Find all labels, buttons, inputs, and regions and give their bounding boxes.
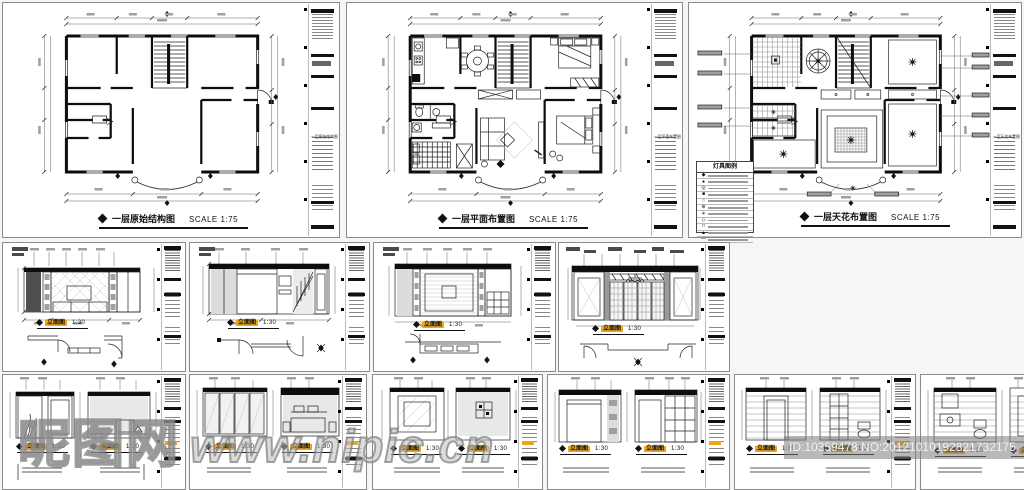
legend-symbol: ◆ — [699, 173, 708, 178]
elevation-drawing — [560, 244, 706, 370]
elevation-scale: 1:30 — [241, 444, 254, 450]
elevation-scale: 1:30 — [628, 326, 641, 332]
titleblock: PROJECT一层天花布置图 — [990, 4, 1020, 236]
titleblock — [705, 376, 728, 488]
diamond-icon — [390, 445, 397, 452]
elevation-title-text: 立面图 — [99, 444, 121, 450]
plan-section — [580, 344, 696, 366]
legend-label-bar — [708, 232, 748, 234]
legend-label-bar — [708, 226, 748, 228]
elevation-scale: 1:30 — [595, 446, 608, 452]
diamond-icon — [98, 214, 108, 224]
legend-symbol: ◎ — [699, 186, 708, 191]
titleblock — [705, 244, 728, 370]
plan-title: 一层原始结构图SCALE 1:75 — [99, 212, 248, 229]
plan-title-text: 一层天花布置图 — [814, 212, 877, 222]
titleblock — [531, 244, 554, 370]
elevation-title-text: 立面图 — [755, 446, 777, 452]
legend-label-bar — [708, 207, 748, 209]
diamond-icon — [746, 445, 753, 452]
titleblock-drawing-name: 一层平面布置图 — [654, 134, 681, 139]
elevation-title-text: 立面图 — [290, 444, 312, 450]
elevation-title: 立面图1:30 — [391, 445, 442, 455]
plan-section — [207, 468, 327, 472]
elevation-title: 立面图1:30 — [593, 325, 644, 335]
plan-section — [938, 468, 1024, 472]
titleblock — [342, 376, 365, 488]
diamond-icon — [438, 214, 448, 224]
elevation-title: 立面图1:30 — [459, 445, 510, 455]
legend-label-bar — [708, 220, 748, 222]
plan-title-text: 一层平面布置图 — [452, 214, 515, 224]
diamond-icon — [413, 321, 420, 328]
elevation-title-text: 立面图 — [601, 326, 623, 332]
sheet-structure-plan: 一层原始结构图SCALE 1:75 PROJECT一层原始结构图 — [2, 2, 340, 238]
titleblock: PROJECT一层原始结构图 — [308, 4, 338, 236]
elevation-title-text: 立面图 — [45, 320, 67, 326]
diamond-icon — [227, 319, 234, 326]
diamond-icon — [281, 443, 288, 450]
elevation-title: 立面图1:30 — [37, 319, 88, 329]
plan-scale: SCALE 1:75 — [189, 215, 238, 224]
sheet-elevation-lattice-wall: 立面图1:30 — [558, 242, 730, 372]
diamond-icon — [559, 445, 566, 452]
elevation-scale: 1:30 — [426, 446, 439, 452]
elevation-scale: 1:30 — [263, 320, 276, 326]
diamond-icon — [90, 443, 97, 450]
legend-label-bar — [708, 239, 748, 241]
sheet-elevation-openings: 立面图1:30 立面图1:30 — [547, 374, 730, 490]
plan-section — [405, 334, 501, 363]
diamond-icon — [458, 445, 465, 452]
titleblock: PROJECT一层平面布置图 — [651, 4, 681, 236]
legend-symbol: ⊕ — [699, 205, 708, 210]
sheet-elevation-entry: 立面图1:30 立面图1:30 — [2, 374, 186, 490]
plan-title: 一层平面布置图SCALE 1:75 — [439, 212, 588, 229]
legend-symbol: ◇ — [699, 218, 708, 223]
plan-scale: SCALE 1:75 — [891, 213, 940, 222]
sheet-elevation-bath-1: 立面图1:30 立面图1:30 — [734, 374, 916, 490]
elevation-title: 立面图1:30 — [17, 443, 68, 453]
furniture-plan-drawing — [348, 4, 653, 236]
legend-symbol: □ — [699, 224, 708, 229]
elevation-scale: 1:30 — [449, 322, 462, 328]
legend-symbol: ■ — [699, 192, 708, 197]
titleblock — [345, 244, 368, 370]
legend-label-bar — [708, 194, 748, 196]
elevation-title-text: 立面图 — [236, 320, 258, 326]
sheet-elevation-bath-2: 立面图1:30 立面图1:30 — [920, 374, 1024, 490]
diamond-icon — [800, 212, 810, 222]
diamond-icon — [205, 443, 212, 450]
elevation-drawing — [4, 244, 162, 370]
elevation-title: 立面图1:30 — [282, 443, 333, 453]
titleblock — [161, 376, 184, 488]
sheet-elevation-bedroom-walls: 立面图1:30 立面图1:30 — [372, 374, 543, 490]
elevation-title-text: 立面图 — [644, 446, 666, 452]
plan-section — [394, 468, 504, 472]
legend-label-bar — [708, 181, 748, 183]
elevation-title: 立面图1:30 — [228, 319, 279, 329]
elevation-title-text: 立面图 — [422, 322, 444, 328]
legend-symbol: ● — [699, 180, 708, 185]
elevation-title: 立面图1:30 — [206, 443, 257, 453]
elevation-scale: 1:30 — [494, 446, 507, 452]
legend-label-bar — [708, 175, 748, 177]
elevation-drawing — [375, 244, 532, 370]
elevation-title-text: 立面图 — [399, 446, 421, 452]
plan-title-text: 一层原始结构图 — [112, 214, 175, 224]
elevation-drawing — [4, 376, 162, 490]
titleblock — [518, 376, 541, 488]
plan-section — [563, 468, 685, 472]
legend-label-bar — [708, 200, 748, 202]
titleblock — [161, 244, 184, 370]
elevation-scale: 1:30 — [52, 444, 65, 450]
elevation-title-text: 立面图 — [214, 444, 236, 450]
image-id-bar: ID:10359478 NO:20121010192821732175 — [784, 436, 1024, 459]
elevation-scale: 1:30 — [317, 444, 330, 450]
legend-label-bar — [708, 188, 748, 190]
sheet-elevation-wardrobe: 立面图1:30 立面图1:30 — [189, 374, 367, 490]
legend-title: 灯具图例 — [697, 162, 753, 173]
elevation-drawing — [549, 376, 706, 490]
elevation-drawing — [191, 244, 346, 370]
plan-title: 一层天花布置图SCALE 1:75 — [801, 210, 950, 227]
legend-symbol: ✳ — [699, 212, 708, 217]
sheet-furniture-plan: 一层平面布置图SCALE 1:75 PROJECT一层平面布置图 — [346, 2, 683, 238]
diamond-icon — [16, 443, 23, 450]
elevation-drawing — [374, 376, 519, 490]
elevation-drawing — [922, 376, 1024, 490]
diamond-icon — [36, 319, 43, 326]
elevation-title: 立面图1:30 — [560, 445, 611, 455]
elevation-title: 立面图1:30 — [636, 445, 687, 455]
legend-label-bar — [708, 213, 748, 215]
project-label: PROJECT — [994, 56, 1013, 61]
sheet-ceiling-plan: 灯具图例 ◆ ● ◎ ■ ○ ⊕ ✳ ◇ □ ▲ — 一层天花布置图SCALE … — [688, 2, 1022, 238]
elevation-drawing — [191, 376, 343, 490]
project-label: PROJECT — [312, 56, 331, 61]
elevation-scale: 1:30 — [72, 320, 85, 326]
sheet-elevation-hall: 立面图1:30 — [189, 242, 370, 372]
elevation-title: 立面图1:30 — [91, 443, 142, 453]
elevation-drawing — [736, 376, 892, 490]
elevation-title-text: 立面图 — [568, 446, 590, 452]
diamond-icon — [592, 325, 599, 332]
titleblock-drawing-name: 一层天花布置图 — [993, 134, 1020, 139]
plan-section — [750, 468, 870, 472]
elevation-scale: 1:30 — [671, 446, 684, 452]
elevation-scale: 1:30 — [126, 444, 139, 450]
plan-section — [18, 464, 144, 480]
titleblock — [891, 376, 914, 488]
light-fixture-legend: 灯具图例 ◆ ● ◎ ■ ○ ⊕ ✳ ◇ □ ▲ — — [696, 161, 754, 233]
titleblock-drawing-name: 一层原始结构图 — [311, 134, 338, 139]
cad-drawing-preview: { "watermark": { "site_name": "昵图网", "si… — [0, 0, 1024, 468]
diamond-icon — [635, 445, 642, 452]
legend-symbol: ▲ — [699, 231, 708, 236]
structure-plan-drawing — [4, 4, 310, 236]
project-label: PROJECT — [655, 56, 674, 61]
elevation-title: 立面图1:30 — [414, 321, 465, 331]
plan-scale: SCALE 1:75 — [529, 215, 578, 224]
sheet-elevation-tv-wall: 立面图1:30 — [2, 242, 186, 372]
plan-section — [28, 336, 122, 367]
legend-symbol: ○ — [699, 199, 708, 204]
sheet-elevation-dining-wall: 立面图1:30 — [373, 242, 556, 372]
elevation-title-text: 立面图 — [25, 444, 47, 450]
plan-section — [217, 336, 325, 356]
elevation-title-text: 立面图 — [467, 446, 489, 452]
